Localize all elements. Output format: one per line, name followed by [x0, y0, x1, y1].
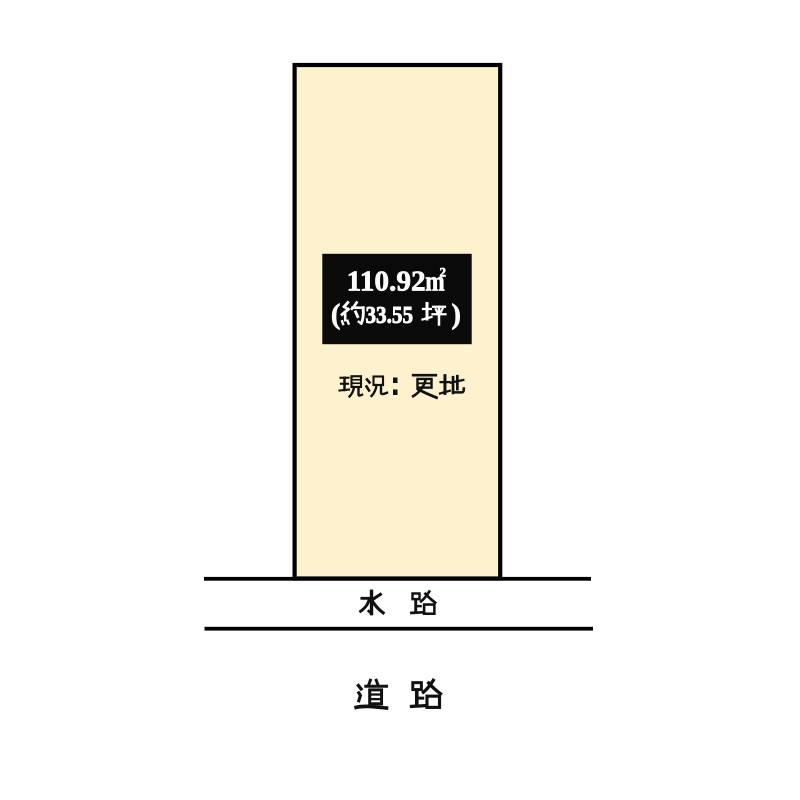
svg-text:): ) — [452, 300, 461, 331]
svg-text:110.92: 110.92 — [347, 266, 426, 298]
svg-text:2: 2 — [440, 265, 447, 280]
svg-text:(: ( — [331, 300, 340, 331]
svg-text:33.55: 33.55 — [366, 302, 414, 329]
